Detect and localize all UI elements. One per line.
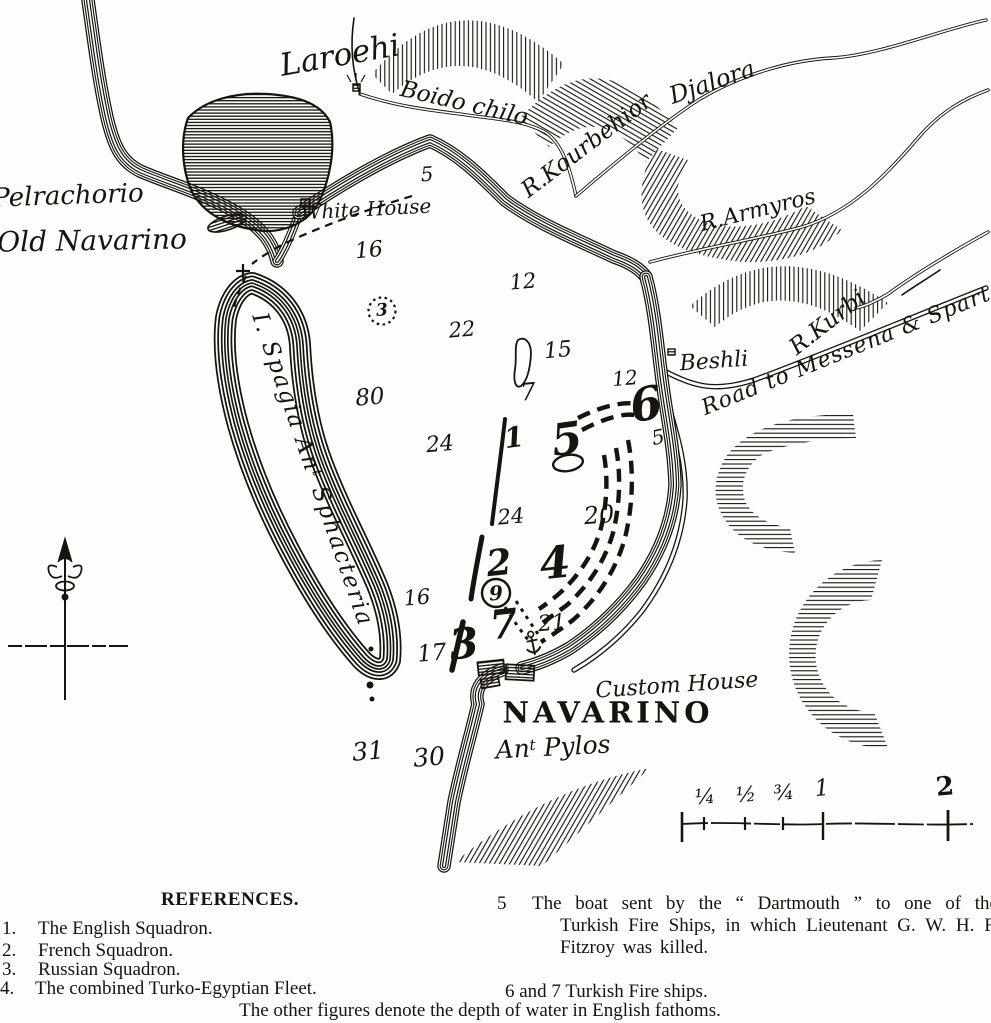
depth-sounding: 16 — [354, 239, 384, 263]
depth-sounding: 5 — [420, 163, 434, 184]
label-white-house: White House — [300, 196, 431, 223]
depth-sounding: 30 — [412, 743, 446, 771]
marker-russian-squadron: 3 — [447, 622, 480, 667]
marker-rock-9: 9 — [488, 583, 503, 604]
reference-number: 5 — [497, 893, 507, 914]
marker-turko-egyptian-fleet: 4 — [537, 541, 572, 588]
scale-tick-label: ¾ — [773, 782, 795, 805]
marker-fire-ship-7: 7 — [488, 604, 520, 647]
depth-sounding: 20 — [583, 502, 616, 529]
depth-sounding: 17 — [416, 641, 447, 666]
map-engraving — [0, 0, 991, 1023]
scale-tick-label: 1 — [814, 777, 831, 801]
reference-number: 4. — [0, 978, 14, 999]
depth-sounding: 16 — [403, 586, 431, 609]
reference-item-5: The boat sent by the “ Dartmouth ” to on… — [532, 893, 991, 960]
scale-tick-label: ¼ — [694, 786, 716, 809]
label-old-navarino: Old Navarino — [0, 225, 187, 256]
label-ant-pylos: Ant Pylos — [495, 732, 611, 763]
label-pelrachorio: Pelrachorio — [0, 180, 144, 211]
label-navarino: NAVARINO — [502, 699, 713, 728]
marker-anchorage-3: 3 — [375, 302, 388, 320]
label-beshli: Beshli — [679, 349, 749, 376]
compass-rose — [8, 538, 128, 700]
scale-bar — [682, 810, 973, 842]
reference-item: The English Squadron. — [38, 918, 213, 939]
reference-item: The combined Turko-Egyptian Fleet. — [35, 978, 317, 999]
depth-sounding: 31 — [351, 737, 385, 765]
depth-sounding: 22 — [448, 318, 476, 341]
depth-sounding: 24 — [425, 433, 455, 457]
depth-sounding: 15 — [543, 339, 573, 363]
references-footnote: The other figures denote the depth of wa… — [140, 1000, 820, 1021]
depth-sounding: 7 — [519, 379, 536, 404]
marker-dartmouth-boat: 5 — [549, 416, 585, 464]
depth-sounding: 24 — [497, 505, 525, 528]
roads — [574, 288, 986, 670]
scale-tick-label: 2 — [935, 773, 955, 800]
depth-sounding: 12 — [509, 270, 537, 293]
navarino-battle-map: Pelrachorio Old Navarino Laroehi Boido c… — [0, 0, 991, 1023]
reference-number: 1. — [2, 918, 16, 939]
references-heading: REFERENCES. — [120, 889, 340, 910]
depth-sounding: 80 — [354, 385, 385, 410]
marker-english-squadron: 1 — [502, 423, 525, 453]
marker-french-squadron: 2 — [485, 544, 514, 582]
scale-tick-label: ½ — [735, 784, 757, 807]
french-squadron-line — [471, 537, 482, 599]
depth-sounding: 21 — [537, 612, 567, 636]
